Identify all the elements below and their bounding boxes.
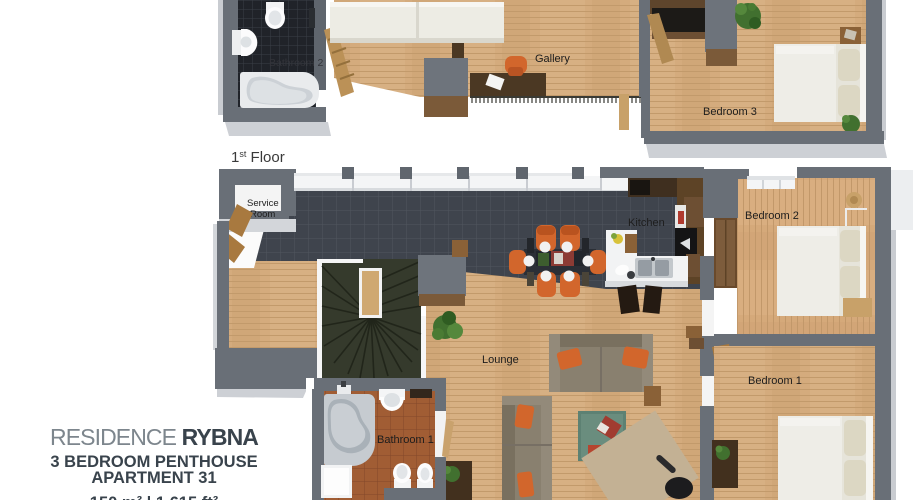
svg-text:Bedroom 3: Bedroom 3 xyxy=(703,106,757,118)
svg-text:1st Floor: 1st Floor xyxy=(231,149,285,166)
svg-text:Bedroom 2: Bedroom 2 xyxy=(745,210,799,222)
svg-text:150 m² | 1,615 ft²: 150 m² | 1,615 ft² xyxy=(90,494,219,500)
svg-text:Bathroom 1: Bathroom 1 xyxy=(377,434,434,446)
svg-text:Bedroom 1: Bedroom 1 xyxy=(748,375,802,387)
svg-text:Gallery: Gallery xyxy=(535,53,570,65)
svg-text:Room: Room xyxy=(250,209,275,220)
svg-text:RESIDENCE RYBNA: RESIDENCE RYBNA xyxy=(50,424,258,450)
svg-text:APARTMENT 31: APARTMENT 31 xyxy=(91,469,216,487)
svg-text:Bathroom 2: Bathroom 2 xyxy=(269,57,323,69)
svg-text:Lounge: Lounge xyxy=(482,354,519,366)
svg-text:Kitchen: Kitchen xyxy=(628,217,665,229)
svg-text:Service: Service xyxy=(247,198,279,209)
